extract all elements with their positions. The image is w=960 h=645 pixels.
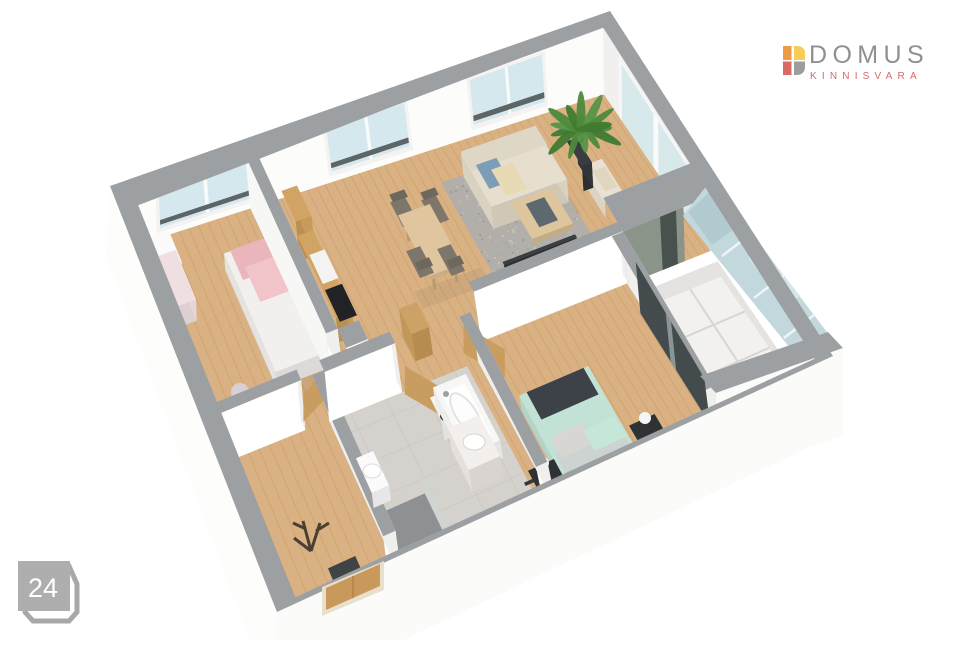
svg-text:KINNISVARA: KINNISVARA <box>810 71 922 82</box>
svg-text:24: 24 <box>28 573 58 603</box>
svg-text:DOMUS: DOMUS <box>809 44 929 69</box>
